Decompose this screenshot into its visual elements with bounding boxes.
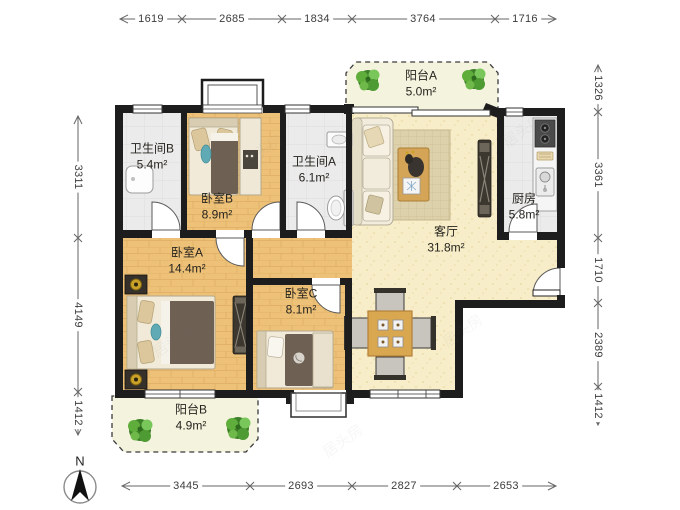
dim-line-right bbox=[594, 65, 602, 425]
room-name: 卧室A bbox=[168, 245, 205, 261]
room-name: 卫生间B bbox=[130, 141, 174, 157]
balcony-b-slider bbox=[145, 390, 215, 398]
room-label-bath-a: 卫生间A 6.1m² bbox=[292, 154, 336, 185]
sofa-symbol bbox=[352, 118, 393, 225]
room-label-bed-a: 卧室A 14.4m² bbox=[168, 245, 205, 276]
tv-cabinet-symbol bbox=[478, 140, 491, 217]
entry-door-leaf bbox=[533, 290, 560, 296]
window bbox=[506, 108, 523, 116]
bed-b-symbol bbox=[189, 118, 261, 195]
room-label-bed-b: 卧室B 8.9m² bbox=[201, 191, 233, 222]
room-area: 8.1m² bbox=[285, 302, 318, 318]
plant-icon bbox=[128, 419, 153, 442]
dining-window bbox=[370, 390, 440, 398]
dim-label: 1716 bbox=[509, 13, 541, 25]
room-name: 卫生间A bbox=[292, 154, 336, 170]
window bbox=[285, 105, 310, 113]
dim-label: 2827 bbox=[388, 480, 420, 492]
dim-label: 1412 bbox=[592, 390, 604, 422]
dim-label: 2693 bbox=[285, 480, 317, 492]
coffee-table-symbol bbox=[398, 148, 429, 201]
room-name: 客厅 bbox=[427, 224, 464, 240]
room-name: 厨房 bbox=[509, 191, 540, 207]
north-label: N bbox=[75, 454, 84, 469]
floorplan-drawing bbox=[0, 0, 680, 510]
bay-window-top bbox=[202, 80, 263, 113]
corridor-floor bbox=[250, 238, 352, 278]
plant-icon bbox=[226, 417, 251, 440]
room-label-balcony-a: 阳台A 5.0m² bbox=[405, 68, 437, 99]
bay-window-bottom bbox=[291, 393, 346, 417]
dim-label: 2653 bbox=[490, 480, 522, 492]
room-area: 14.4m² bbox=[168, 261, 205, 277]
floorplan-canvas: 阳台A 5.0m² 卫生间B 5.4m² 卧室B 8.9m² 卫生间A 6.1m… bbox=[0, 0, 680, 510]
dim-label: 1619 bbox=[135, 13, 167, 25]
dim-label: 1412 bbox=[72, 397, 84, 429]
room-label-living: 客厅 31.8m² bbox=[427, 224, 464, 255]
room-label-bath-b: 卫生间B 5.4m² bbox=[130, 141, 174, 172]
room-area: 4.9m² bbox=[175, 418, 207, 434]
room-area: 5.0m² bbox=[405, 84, 437, 100]
dim-label: 3311 bbox=[72, 162, 84, 193]
room-label-bed-c: 卧室C 8.1m² bbox=[285, 286, 318, 317]
dim-label: 1834 bbox=[301, 13, 333, 25]
room-label-balcony-b: 阳台B 4.9m² bbox=[175, 402, 207, 433]
room-name: 卧室C bbox=[285, 286, 318, 302]
dim-label: 1326 bbox=[592, 72, 604, 104]
room-label-kitchen: 厨房 5.8m² bbox=[509, 191, 540, 222]
stove-symbol bbox=[535, 120, 555, 147]
window bbox=[133, 105, 162, 113]
room-name: 卧室B bbox=[201, 191, 233, 207]
north-arrow-icon bbox=[64, 469, 96, 503]
dim-label: 4149 bbox=[72, 299, 84, 331]
dim-line-top bbox=[120, 15, 556, 23]
dim-label: 3445 bbox=[170, 480, 202, 492]
dim-label: 3361 bbox=[592, 159, 604, 191]
dim-label: 2685 bbox=[216, 13, 248, 25]
bed-c-symbol bbox=[257, 331, 333, 388]
dim-label: 3764 bbox=[407, 13, 439, 25]
room-area: 31.8m² bbox=[427, 240, 464, 256]
room-name: 阳台A bbox=[405, 68, 437, 84]
room-area: 5.8m² bbox=[509, 207, 540, 223]
room-name: 阳台B bbox=[175, 402, 207, 418]
dim-label: 1710 bbox=[592, 254, 604, 286]
dim-label: 2389 bbox=[592, 329, 604, 361]
room-area: 6.1m² bbox=[292, 170, 336, 186]
room-area: 8.9m² bbox=[201, 207, 233, 223]
room-area: 5.4m² bbox=[130, 157, 174, 173]
